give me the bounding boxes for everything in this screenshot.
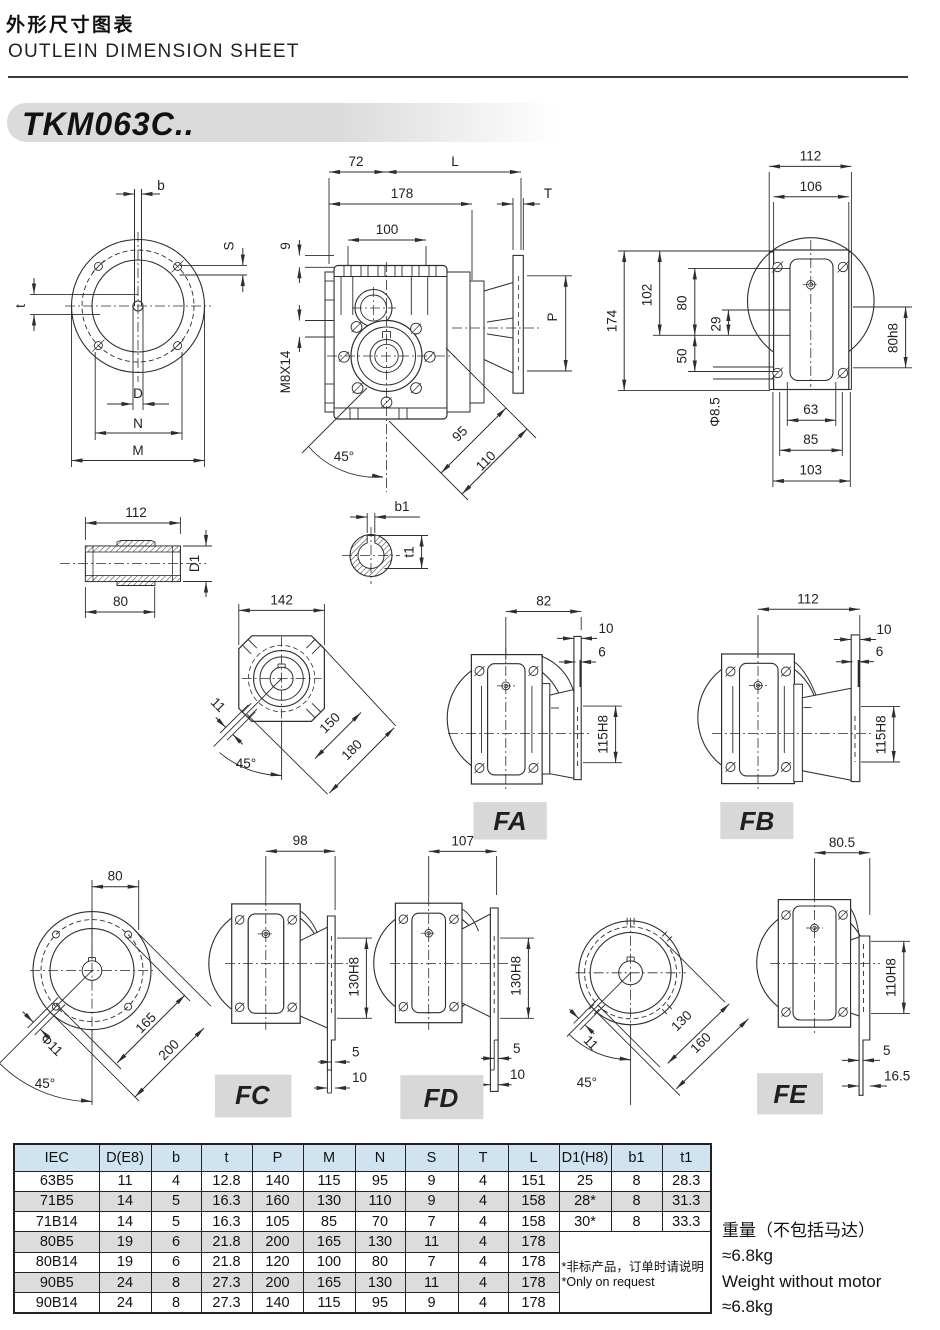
svg-text:100: 100 [376,222,399,237]
svg-text:b1: b1 [394,499,409,514]
svg-text:10: 10 [352,1070,367,1085]
svg-text:M: M [132,443,143,458]
svg-text:11: 11 [208,695,229,716]
svg-text:29: 29 [708,316,723,331]
svg-text:115H8: 115H8 [874,715,889,754]
svg-text:FE: FE [773,1079,807,1109]
svg-text:10: 10 [598,621,613,636]
svg-text:165: 165 [133,1010,160,1037]
svg-text:10: 10 [876,622,891,637]
svg-text:45°: 45° [35,1076,55,1091]
svg-text:103: 103 [800,463,823,478]
svg-text:112: 112 [125,505,147,520]
svg-text:102: 102 [640,284,655,307]
svg-text:72: 72 [348,154,363,169]
svg-text:t: t [13,304,28,308]
svg-text:130: 130 [668,1008,695,1035]
svg-text:6: 6 [876,644,884,659]
svg-text:5: 5 [883,1043,891,1058]
svg-text:200: 200 [156,1037,183,1064]
svg-text:130H8: 130H8 [508,956,523,996]
svg-text:5: 5 [513,1041,521,1056]
svg-text:45°: 45° [577,1075,597,1090]
svg-text:80: 80 [113,594,128,609]
svg-text:112: 112 [797,591,819,606]
svg-text:178: 178 [391,186,414,201]
svg-text:10: 10 [510,1067,525,1082]
svg-text:FB: FB [740,806,775,836]
svg-text:6: 6 [598,645,606,660]
svg-text:45°: 45° [334,449,354,464]
svg-text:5: 5 [352,1045,360,1060]
svg-text:98: 98 [293,833,308,848]
svg-text:L: L [451,154,459,169]
svg-text:112: 112 [800,149,822,164]
svg-text:107: 107 [451,833,474,848]
svg-text:82: 82 [536,594,551,609]
svg-text:FD: FD [424,1083,459,1113]
svg-text:110: 110 [473,448,499,474]
svg-text:M8X14: M8X14 [278,350,293,393]
svg-text:115H8: 115H8 [596,715,611,754]
svg-text:11: 11 [581,1033,602,1054]
svg-text:142: 142 [270,593,293,608]
svg-text:63: 63 [803,402,818,417]
svg-text:150: 150 [317,710,344,737]
svg-text:50: 50 [675,348,690,363]
svg-text:P: P [545,312,560,321]
svg-text:b: b [157,178,165,193]
svg-text:110H8: 110H8 [884,958,899,997]
svg-text:106: 106 [800,179,823,194]
svg-text:D: D [133,386,143,401]
svg-text:80.5: 80.5 [829,835,855,850]
svg-text:Φ8.5: Φ8.5 [708,397,723,427]
svg-text:9: 9 [278,242,293,250]
svg-text:80: 80 [675,295,690,310]
svg-text:t1: t1 [402,546,417,557]
svg-text:T: T [544,186,552,201]
svg-text:80h8: 80h8 [886,323,901,353]
svg-text:FA: FA [493,806,526,836]
svg-text:Φ11: Φ11 [38,1031,66,1059]
svg-text:FC: FC [235,1080,271,1110]
svg-text:N: N [133,416,143,431]
svg-text:180: 180 [339,737,366,764]
svg-text:174: 174 [604,309,619,332]
svg-text:85: 85 [803,432,818,447]
svg-text:160: 160 [687,1030,714,1057]
svg-text:95: 95 [449,423,470,444]
svg-text:45°: 45° [236,756,256,771]
svg-text:16.5: 16.5 [884,1069,910,1084]
svg-text:80: 80 [108,869,123,884]
svg-text:130H8: 130H8 [346,957,361,997]
svg-text:S: S [222,241,237,250]
svg-text:D1: D1 [187,555,202,572]
